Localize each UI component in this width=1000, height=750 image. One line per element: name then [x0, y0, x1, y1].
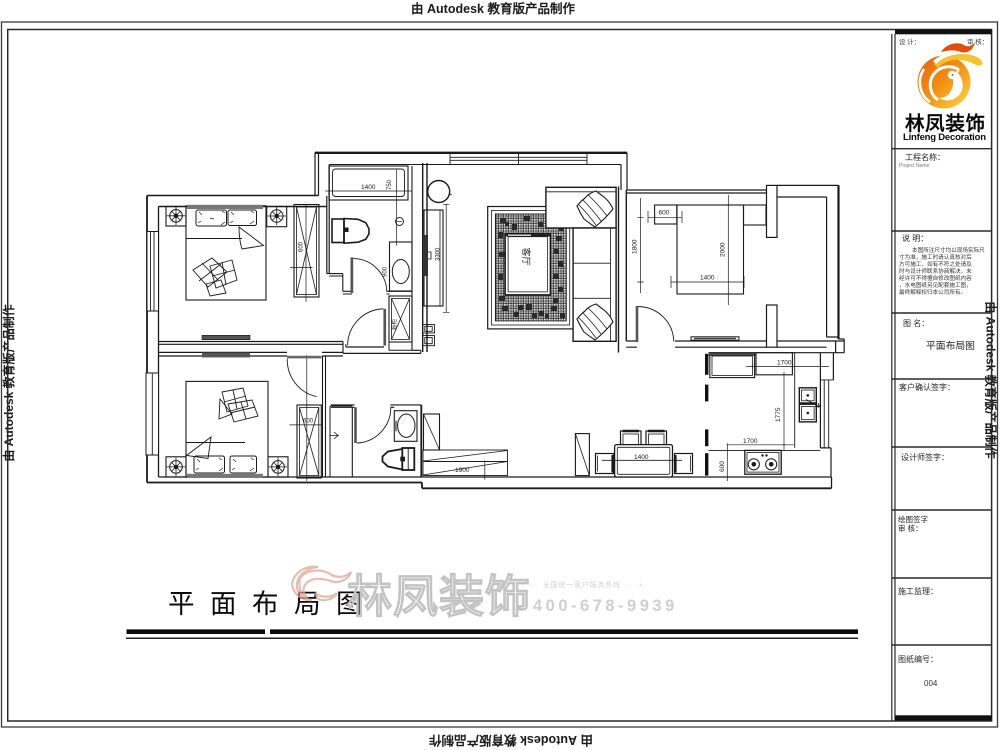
svg-text:经许可不得擅自修改图纸内容: 经许可不得擅自修改图纸内容: [899, 274, 972, 282]
svg-text:1775: 1775: [775, 407, 782, 422]
svg-text:3300: 3300: [436, 247, 442, 261]
svg-text:最终解释权归本公司所有。: 最终解释权归本公司所有。: [899, 288, 966, 296]
svg-text:1700: 1700: [743, 438, 758, 445]
svg-text:时与设计师联系协商解决，未: 时与设计师联系协商解决，未: [899, 267, 972, 275]
svg-text:客厅: 客厅: [521, 248, 532, 266]
svg-text:600: 600: [303, 419, 314, 425]
svg-text:审 核：: 审 核：: [898, 523, 923, 533]
svg-text:由 Autodesk 教育版产品制作: 由 Autodesk 教育版产品制作: [411, 1, 575, 16]
svg-text:审 核：: 审 核：: [967, 37, 988, 46]
svg-text:鞋柜: 鞋柜: [390, 318, 398, 330]
svg-text:900: 900: [383, 266, 389, 277]
svg-text:，水电图纸另见配套施工图，: ，水电图纸另见配套施工图，: [899, 281, 972, 289]
svg-text:设计师签字：: 设计师签字：: [901, 452, 949, 462]
svg-text:1400: 1400: [700, 275, 715, 282]
svg-text:绘图签字: 绘图签字: [898, 514, 928, 524]
svg-text:1900: 1900: [455, 467, 470, 474]
svg-text:寸为准，施工时请认真核对后: 寸为准，施工时请认真核对后: [899, 253, 972, 261]
svg-text:600: 600: [659, 210, 670, 217]
svg-text:2000: 2000: [720, 242, 727, 257]
svg-text:Project Name: Project Name: [899, 163, 930, 169]
svg-text:施工监理：: 施工监理：: [898, 586, 938, 596]
svg-text:600: 600: [719, 461, 726, 472]
svg-text:图纸编号：: 图纸编号：: [898, 654, 938, 664]
svg-text:Linfeng Decoration: Linfeng Decoration: [903, 132, 986, 143]
svg-text:600: 600: [299, 241, 305, 252]
svg-text:1800: 1800: [632, 239, 639, 254]
svg-text:1400: 1400: [634, 454, 649, 461]
svg-text:由 Autodesk 教育版产品制作: 由 Autodesk 教育版产品制作: [429, 733, 593, 748]
svg-text:设 计：: 设 计：: [899, 37, 920, 46]
svg-text:方可施工，如有不符之处请及: 方可施工，如有不符之处请及: [899, 260, 972, 268]
svg-text:说 明：: 说 明：: [902, 233, 928, 243]
svg-text:工程名称：: 工程名称：: [905, 152, 945, 162]
svg-text:1700: 1700: [777, 360, 792, 367]
svg-text:客户确认签字：: 客户确认签字：: [899, 382, 955, 392]
svg-text:004: 004: [924, 679, 938, 688]
svg-text:图 名：: 图 名：: [903, 318, 929, 328]
svg-text:由 Autodesk 教育版产品制作: 由 Autodesk 教育版产品制作: [1, 304, 16, 461]
svg-text:400-678-9939: 400-678-9939: [533, 597, 678, 615]
svg-text:林凤装饰: 林凤装饰: [347, 571, 531, 622]
svg-text:750: 750: [387, 179, 393, 190]
svg-text:·:·· 全国统一客户服务热线 ·····•··: ·:·· 全国统一客户服务热线 ·····•··: [528, 580, 649, 589]
svg-text:本图所注尺寸均以现场实际尺: 本图所注尺寸均以现场实际尺: [912, 246, 985, 254]
svg-text:平面布局图: 平面布局图: [926, 340, 975, 352]
svg-text:1400: 1400: [361, 184, 376, 191]
